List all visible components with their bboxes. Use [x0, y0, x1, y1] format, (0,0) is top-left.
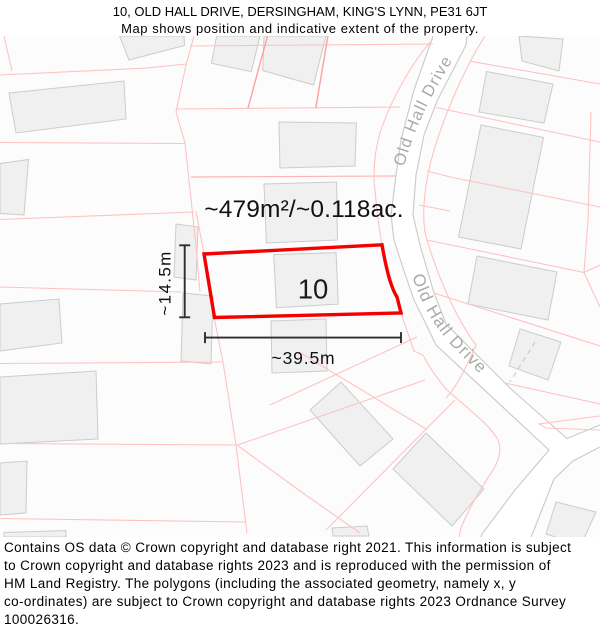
- svg-text:~479m²/~0.118ac.: ~479m²/~0.118ac.: [204, 196, 403, 223]
- svg-text:10: 10: [298, 274, 329, 305]
- svg-text:~14.5m: ~14.5m: [156, 250, 175, 315]
- svg-text:~39.5m: ~39.5m: [272, 348, 336, 368]
